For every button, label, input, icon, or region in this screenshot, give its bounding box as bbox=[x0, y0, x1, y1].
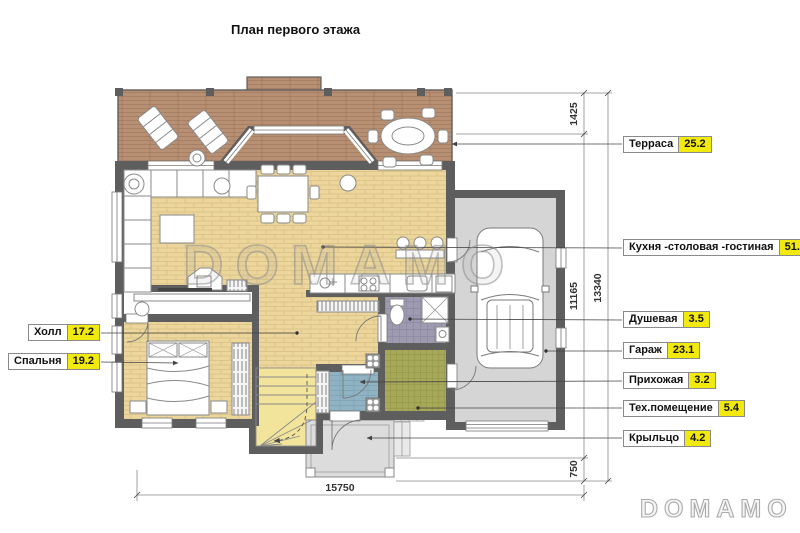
room-area-entry: 3.2 bbox=[689, 372, 715, 389]
page-title: План первого этажа bbox=[231, 22, 360, 37]
room-area-tech: 5.4 bbox=[719, 400, 745, 417]
room-name-terrace: Терраса bbox=[623, 136, 679, 153]
floor-plan-page: 1425 11165 750 13340 15750 DOMAMO DOMAMO… bbox=[0, 0, 800, 533]
room-area-kitchen-living: 51.9 bbox=[780, 239, 800, 256]
room-label-hall: Холл17.2 bbox=[28, 324, 100, 341]
porch bbox=[306, 412, 424, 477]
room-name-entry: Прихожая bbox=[623, 372, 689, 389]
watermark-logo: DOMAMO bbox=[640, 495, 793, 524]
room-area-shower: 3.5 bbox=[684, 311, 710, 328]
dim-house-depth: 11165 bbox=[568, 282, 580, 310]
room-label-entry: Прихожая3.2 bbox=[623, 372, 716, 389]
dim-porch-depth: 750 bbox=[568, 460, 580, 478]
room-area-terrace: 25.2 bbox=[679, 136, 711, 153]
tech-room-floor bbox=[385, 350, 446, 411]
room-label-bedroom: Спальня19.2 bbox=[8, 353, 100, 370]
room-name-tech: Тех.помещение bbox=[623, 400, 719, 417]
room-label-kitchen-living: Кухня -столовая -гостиная51.9 bbox=[623, 239, 800, 256]
room-area-garage: 23.1 bbox=[668, 342, 700, 359]
room-label-porch: Крыльцо4.2 bbox=[623, 430, 711, 447]
room-label-terrace: Терраса25.2 bbox=[623, 136, 712, 153]
room-name-garage: Гараж bbox=[623, 342, 668, 359]
room-area-bedroom: 19.2 bbox=[68, 353, 100, 370]
watermark-center: DOMAMO bbox=[183, 232, 516, 297]
dim-terrace-depth: 1425 bbox=[568, 102, 580, 126]
dim-total-depth: 13340 bbox=[592, 273, 604, 302]
room-name-porch: Крыльцо bbox=[623, 430, 685, 447]
room-name-hall: Холл bbox=[28, 324, 68, 341]
room-name-bedroom: Спальня bbox=[8, 353, 68, 370]
room-area-hall: 17.2 bbox=[68, 324, 100, 341]
room-name-shower: Душевая bbox=[623, 311, 684, 328]
room-area-porch: 4.2 bbox=[685, 430, 711, 447]
room-label-garage: Гараж23.1 bbox=[623, 342, 700, 359]
room-label-tech: Тех.помещение5.4 bbox=[623, 400, 745, 417]
room-name-kitchen-living: Кухня -столовая -гостиная bbox=[623, 239, 780, 256]
dim-total-width: 15750 bbox=[325, 482, 354, 494]
room-label-shower: Душевая3.5 bbox=[623, 311, 710, 328]
